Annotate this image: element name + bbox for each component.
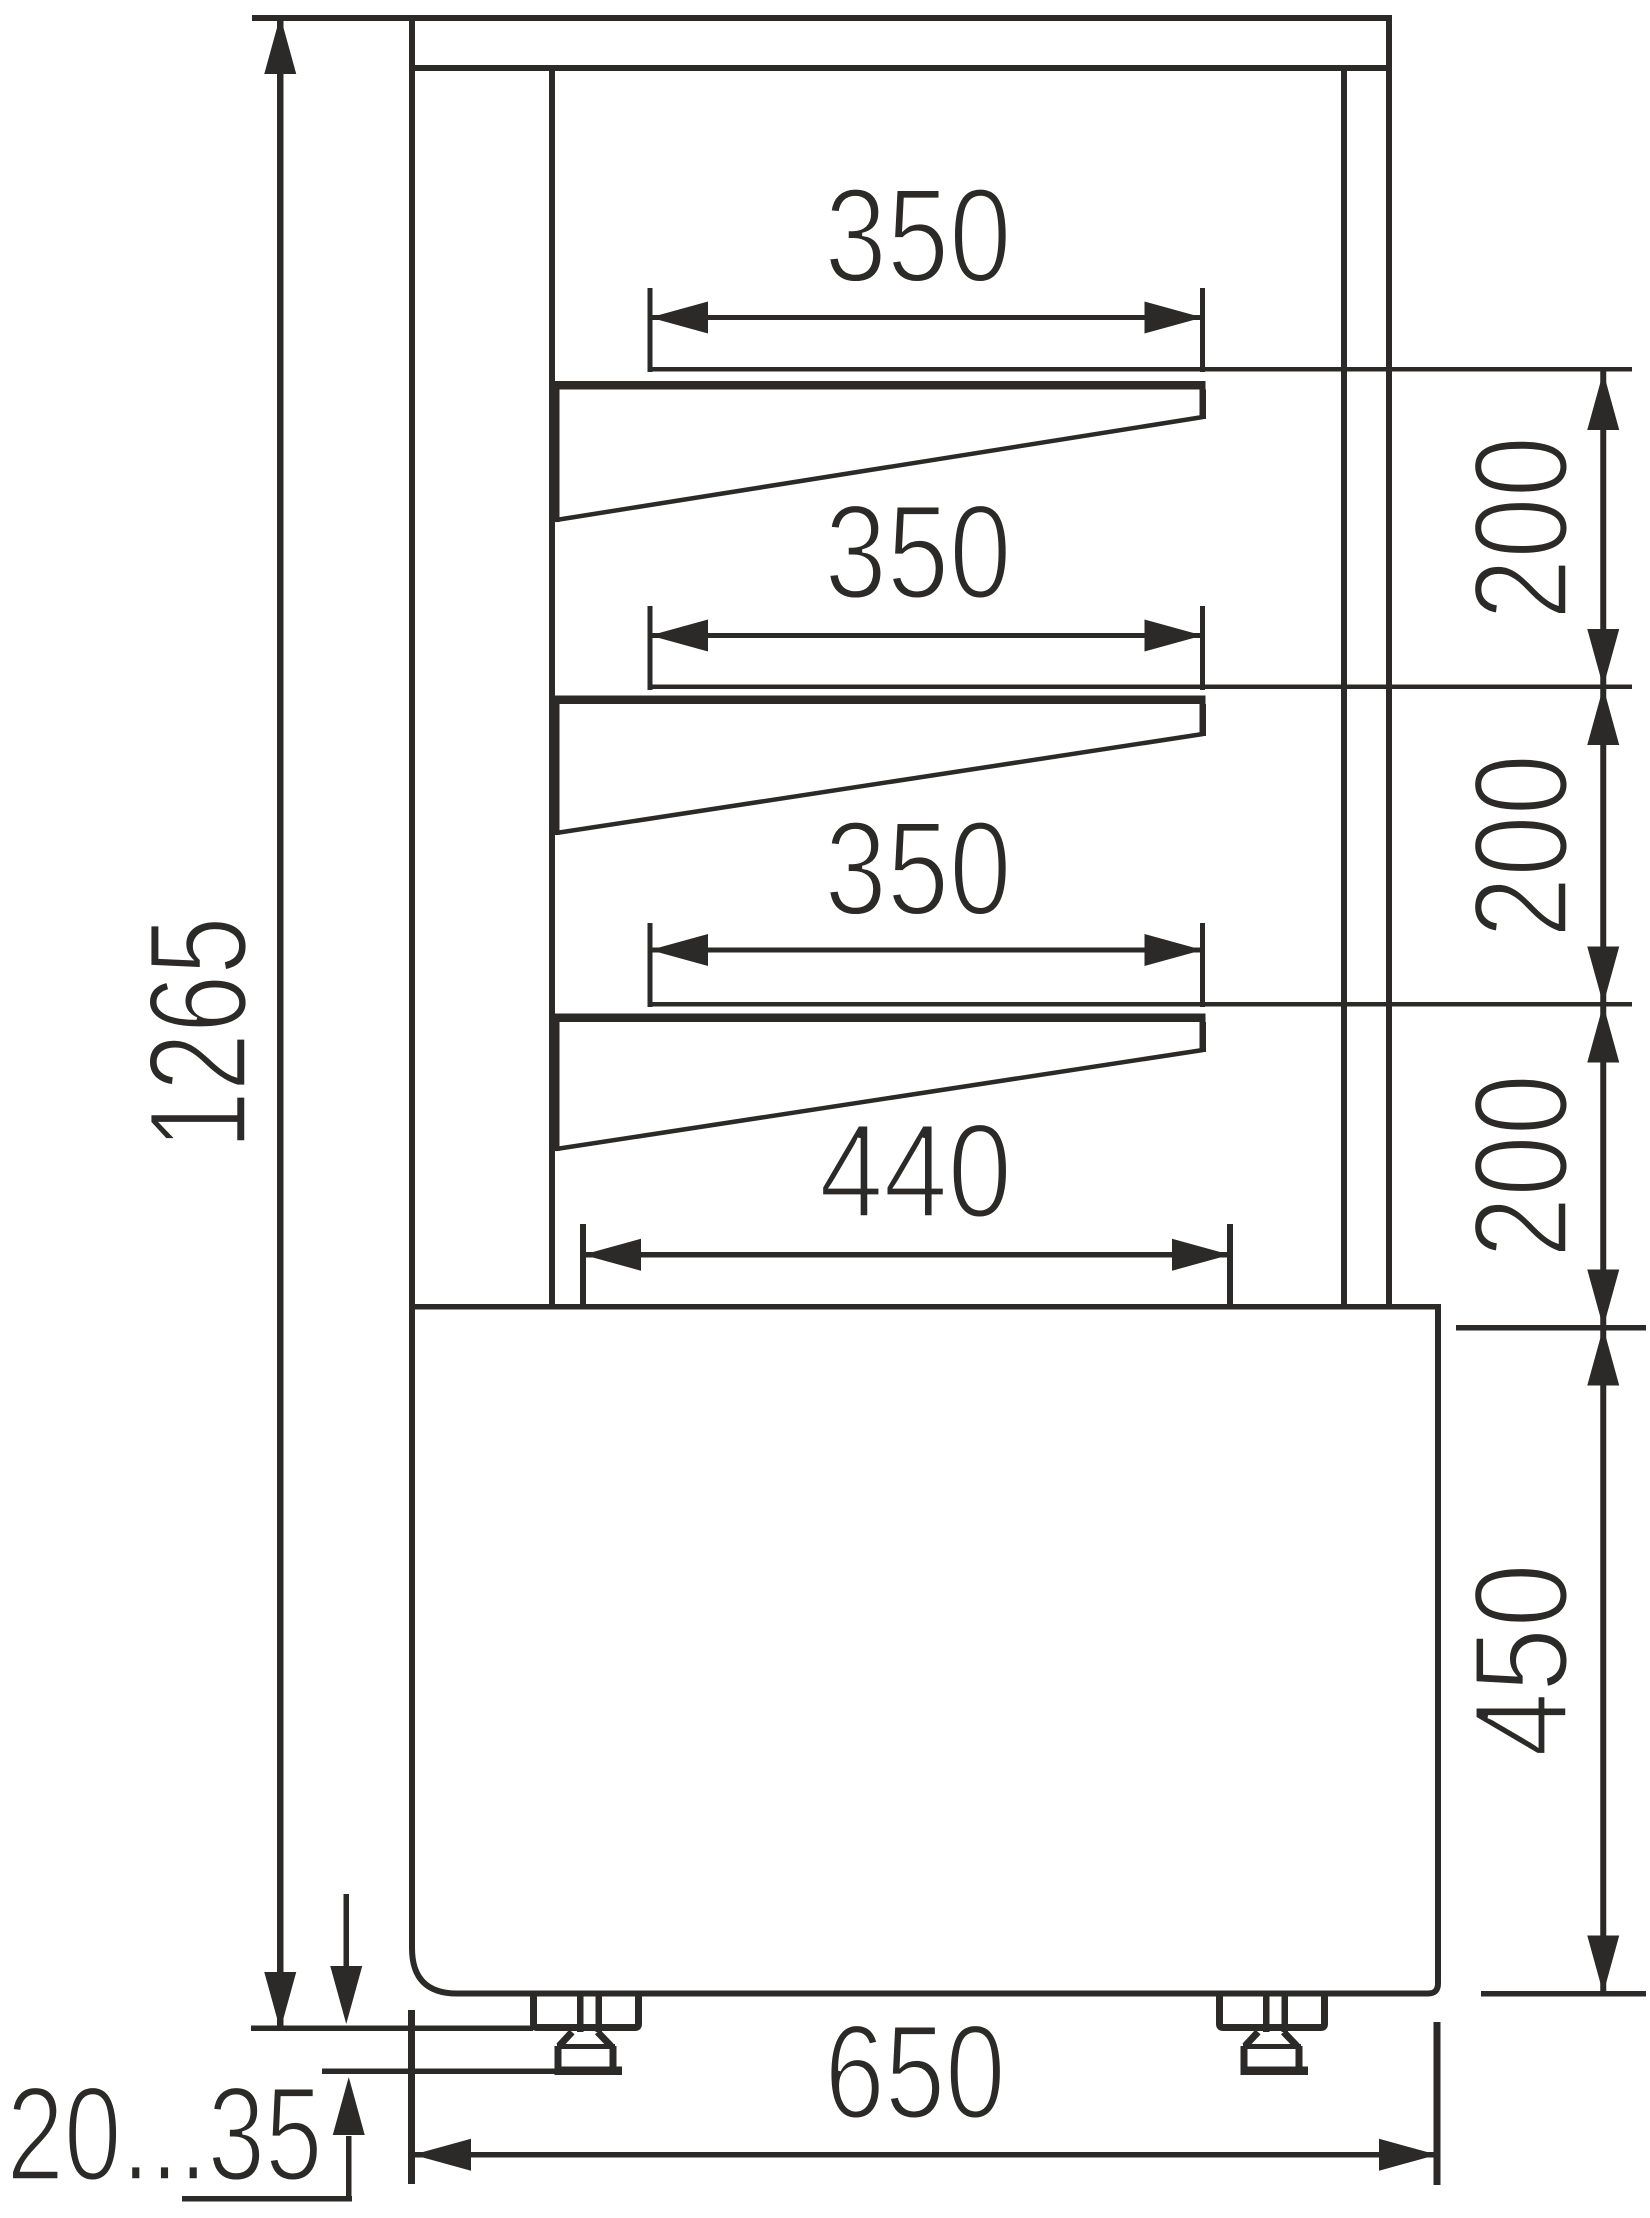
- svg-text:200: 200: [1447, 754, 1596, 938]
- svg-text:350: 350: [825, 795, 1012, 944]
- svg-text:350: 350: [825, 478, 1012, 627]
- svg-text:200: 200: [1447, 1074, 1596, 1258]
- svg-text:1265: 1265: [119, 917, 276, 1150]
- svg-text:20...35: 20...35: [7, 2060, 323, 2209]
- svg-text:450: 450: [1447, 1563, 1596, 1757]
- svg-text:650: 650: [825, 1998, 1006, 2147]
- svg-text:350: 350: [825, 162, 1012, 311]
- svg-text:200: 200: [1447, 436, 1596, 620]
- svg-text:440: 440: [819, 1097, 1012, 1246]
